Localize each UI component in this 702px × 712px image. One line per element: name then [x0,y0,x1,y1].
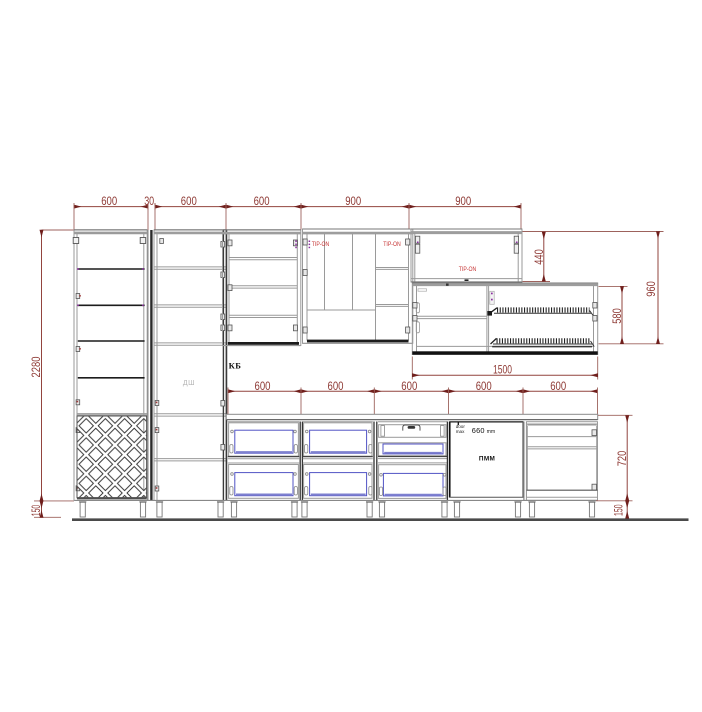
svg-text:440: 440 [532,249,546,265]
svg-text:1500: 1500 [493,363,512,377]
svg-text:30: 30 [144,194,154,208]
svg-text:TIP-ON: TIP-ON [383,241,401,248]
svg-text:mm: mm [487,429,496,435]
svg-text:600: 600 [101,194,117,208]
svg-text:КБ: КБ [229,361,242,371]
svg-text:ДШ: ДШ [183,380,195,387]
svg-text:600: 600 [255,379,271,393]
svg-text:580: 580 [610,308,624,324]
svg-text:600: 600 [476,379,492,393]
svg-text:900: 900 [345,194,361,208]
svg-text:600: 600 [550,379,566,393]
svg-text:150: 150 [29,505,43,517]
svg-text:2280: 2280 [29,356,43,377]
svg-text:max: max [456,429,465,434]
svg-text:600: 600 [254,194,270,208]
svg-text:TIP-ON: TIP-ON [312,241,330,248]
svg-text:600: 600 [401,379,417,393]
svg-text:TIP-ON: TIP-ON [459,266,477,273]
svg-text:900: 900 [455,194,471,208]
svg-text:600: 600 [181,194,197,208]
svg-text:660: 660 [472,426,485,435]
svg-text:720: 720 [615,451,629,467]
svg-text:600: 600 [328,379,344,393]
svg-text:960: 960 [644,281,658,297]
svg-text:150: 150 [612,504,626,516]
svg-text:ПММ: ПММ [479,456,495,463]
